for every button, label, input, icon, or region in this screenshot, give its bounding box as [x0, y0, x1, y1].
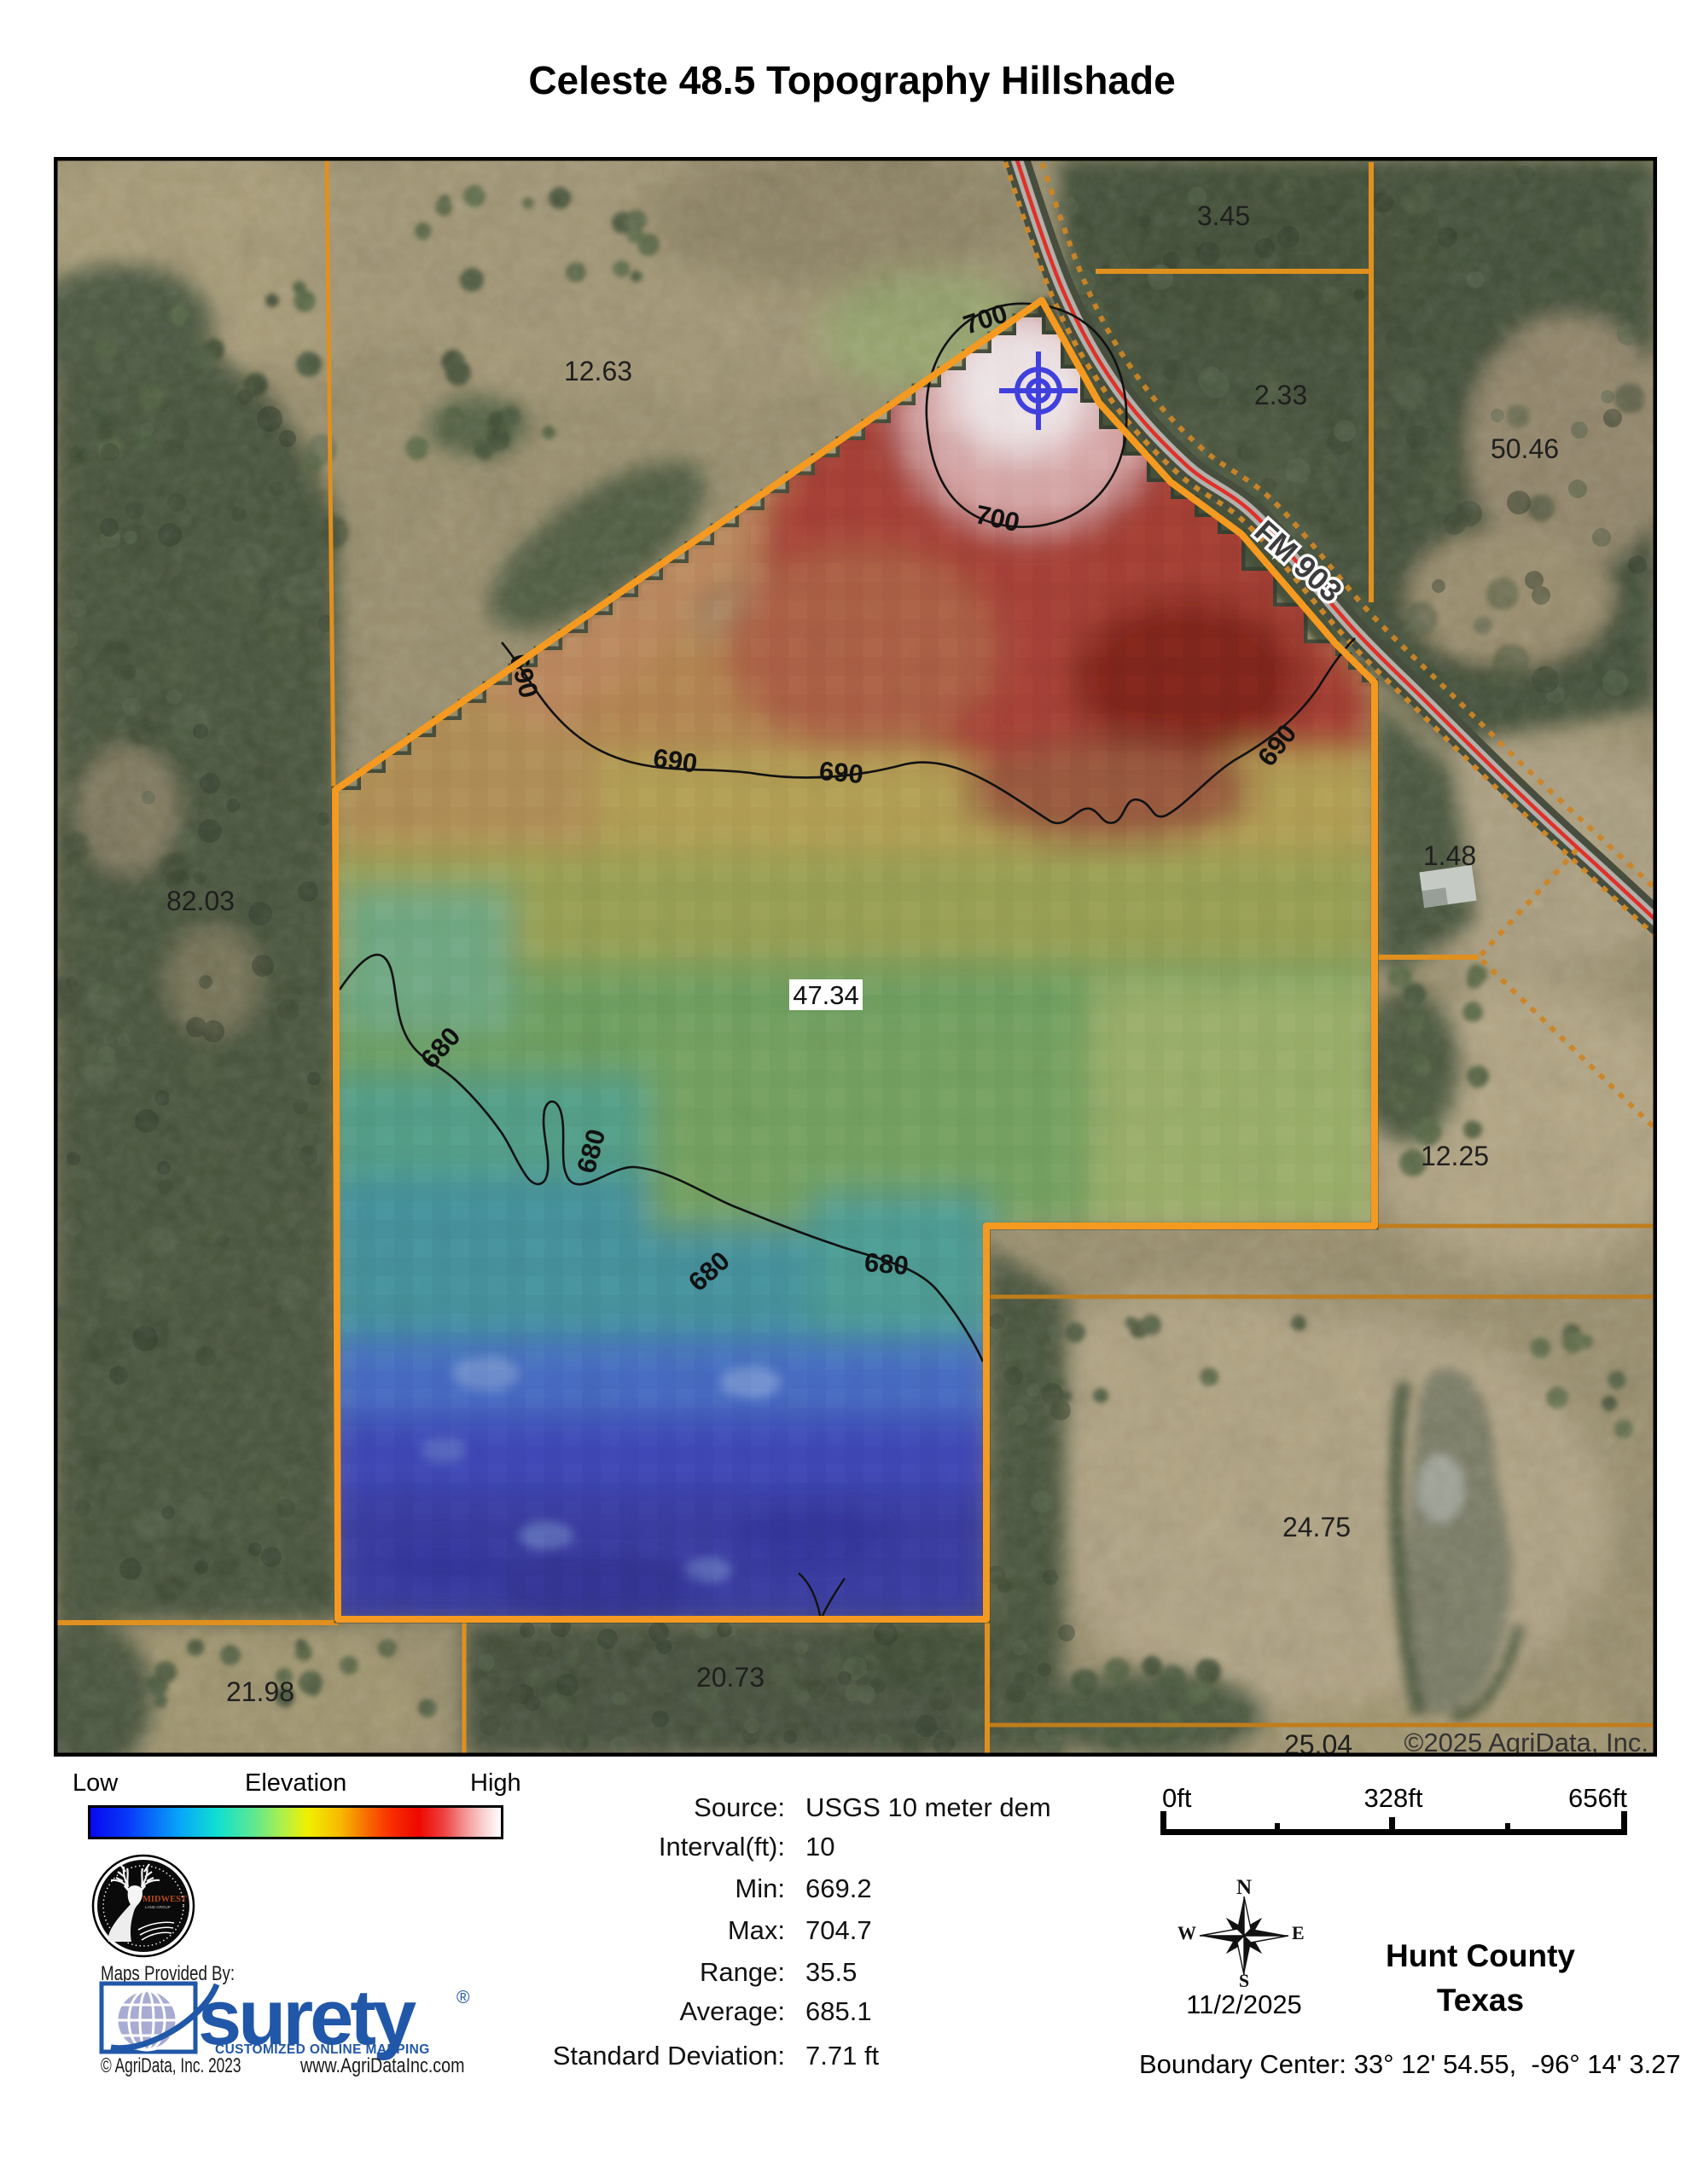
svg-text:680: 680 [863, 1247, 910, 1281]
svg-text:47.34: 47.34 [793, 980, 859, 1010]
svg-text:50.46: 50.46 [1491, 433, 1559, 464]
svg-text:2.33: 2.33 [1254, 380, 1307, 410]
svg-text:W: W [1177, 1922, 1196, 1943]
svg-text:N: N [1236, 1876, 1252, 1899]
svg-text:690: 690 [818, 756, 865, 789]
svg-text:1.48: 1.48 [1423, 840, 1476, 871]
svg-text:®: ® [456, 1988, 470, 2007]
svg-text:©2025 AgriData, Inc.: ©2025 AgriData, Inc. [1404, 1728, 1648, 1757]
svg-text:25.04: 25.04 [1284, 1729, 1352, 1757]
svg-text:82.03: 82.03 [166, 886, 235, 916]
svg-text:21.98: 21.98 [226, 1676, 294, 1707]
svg-text:3.45: 3.45 [1197, 200, 1250, 231]
svg-text:24.75: 24.75 [1282, 1512, 1351, 1542]
svg-text:12.25: 12.25 [1421, 1141, 1489, 1171]
svg-text:S: S [1239, 1970, 1249, 1991]
svg-text:20.73: 20.73 [696, 1662, 765, 1693]
svg-text:E: E [1292, 1922, 1305, 1943]
svg-text:MIDWEST: MIDWEST [142, 1895, 187, 1904]
svg-text:LAND GROUP: LAND GROUP [145, 1905, 171, 1909]
svg-text:690: 690 [651, 743, 699, 779]
svg-text:12.63: 12.63 [564, 356, 632, 386]
